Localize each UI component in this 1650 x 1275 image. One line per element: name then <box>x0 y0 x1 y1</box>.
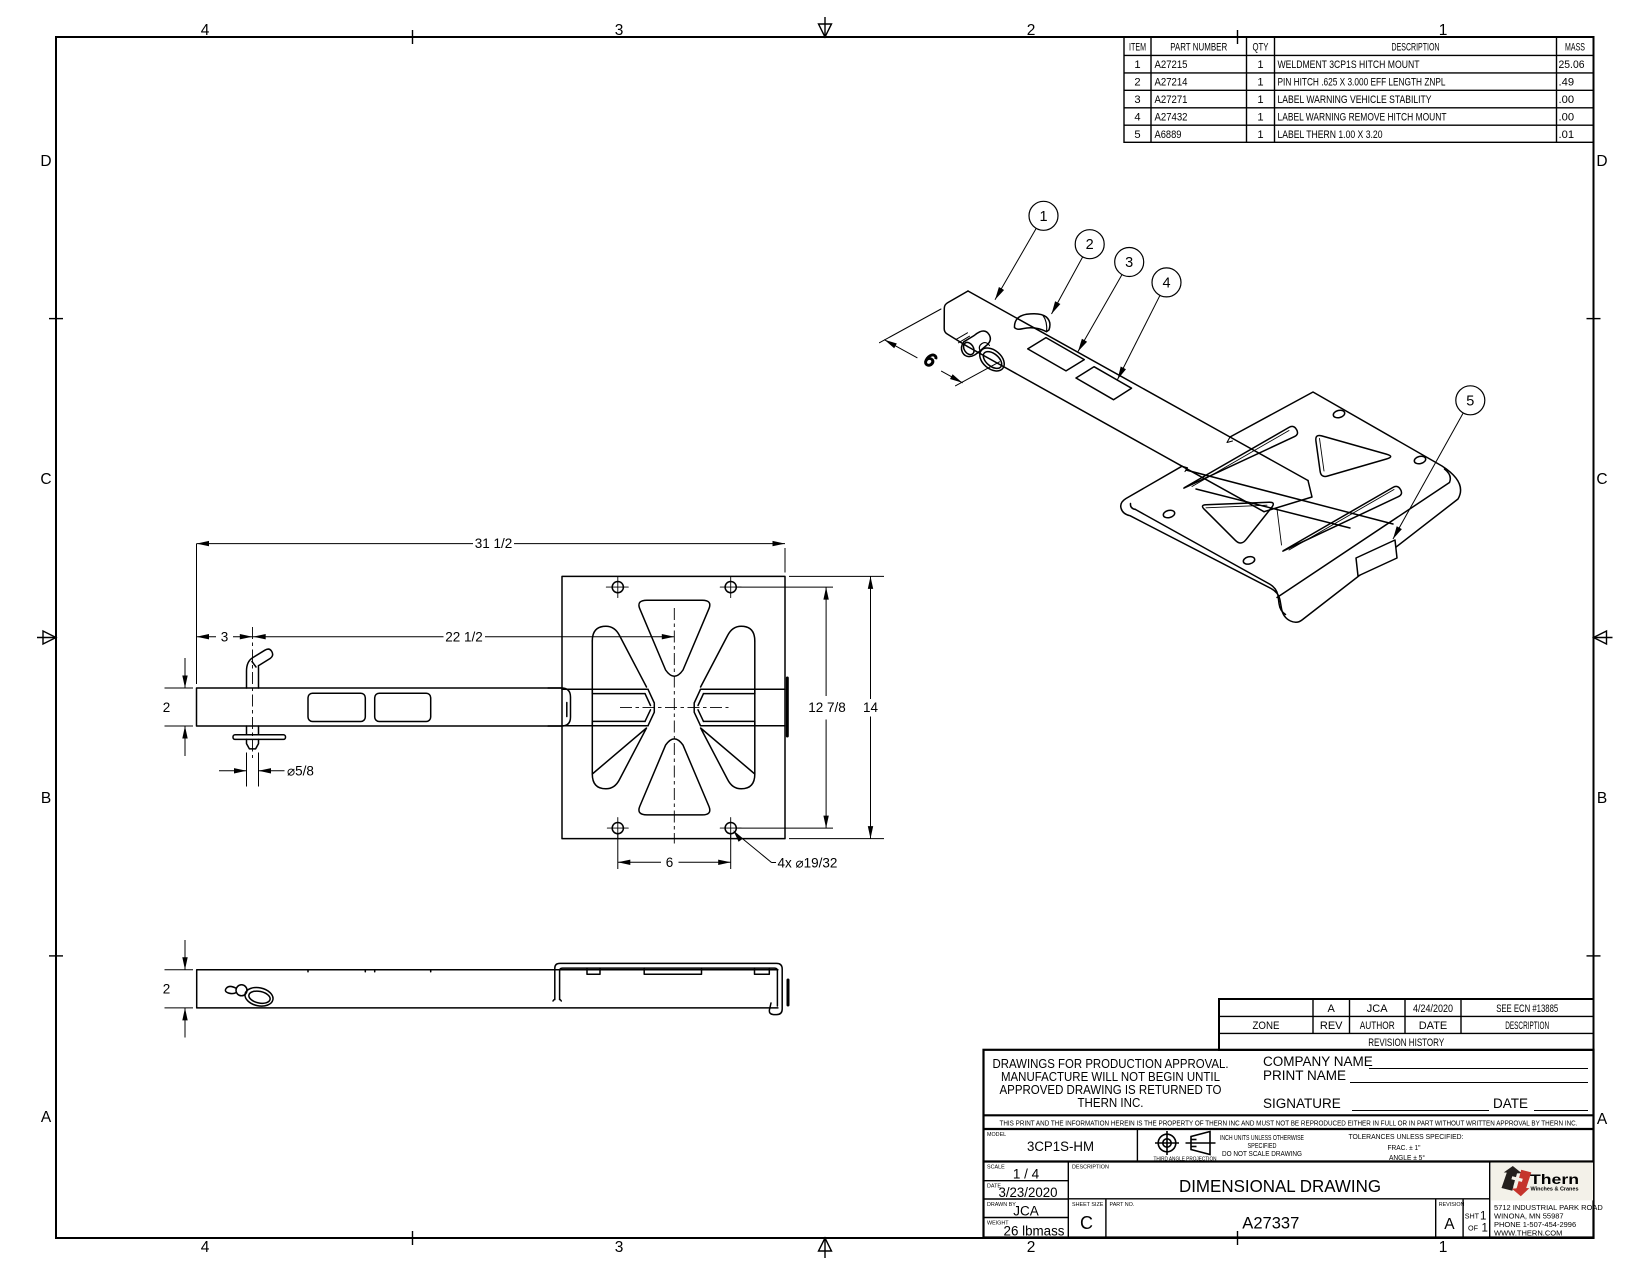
svg-text:3: 3 <box>615 22 624 39</box>
svg-text:LABEL THERN 1.00 X 3.20: LABEL THERN 1.00 X 3.20 <box>1278 129 1383 141</box>
svg-text:4: 4 <box>1162 275 1170 291</box>
svg-text:4: 4 <box>201 1239 210 1256</box>
svg-text:.01: .01 <box>1559 129 1575 141</box>
svg-text:REVISION HISTORY: REVISION HISTORY <box>1368 1037 1444 1049</box>
svg-text:3CP1S-HM: 3CP1S-HM <box>1027 1139 1094 1154</box>
svg-text:REV: REV <box>1320 1020 1343 1032</box>
svg-text:WELDMENT 3CP1S HITCH MOUNT: WELDMENT 3CP1S HITCH MOUNT <box>1278 59 1420 71</box>
svg-text:.00: .00 <box>1559 94 1575 106</box>
svg-text:.00: .00 <box>1559 112 1575 124</box>
svg-text:2: 2 <box>1027 1239 1036 1256</box>
svg-text:C: C <box>1080 1213 1093 1233</box>
svg-text:Thern: Thern <box>1530 1172 1579 1187</box>
svg-text:SHEET SIZE: SHEET SIZE <box>1072 1202 1104 1208</box>
svg-text:2: 2 <box>1134 77 1140 89</box>
svg-text:PART NO.: PART NO. <box>1110 1202 1135 1208</box>
svg-text:DESCRIPTION: DESCRIPTION <box>1072 1165 1109 1171</box>
svg-text:QTY: QTY <box>1253 42 1269 54</box>
svg-text:DESCRIPTION: DESCRIPTION <box>1505 1020 1549 1032</box>
svg-text:THIS PRINT AND THE INFORMATION: THIS PRINT AND THE INFORMATION HEREIN IS… <box>1000 1119 1578 1128</box>
svg-text:5: 5 <box>1466 393 1474 409</box>
svg-text:A27271: A27271 <box>1155 94 1188 106</box>
svg-text:3: 3 <box>1125 255 1133 271</box>
svg-text:3: 3 <box>221 629 229 644</box>
svg-text:DRAWINGS FOR PRODUCTION APPROV: DRAWINGS FOR PRODUCTION APPROVAL. <box>993 1057 1229 1071</box>
svg-text:1: 1 <box>1134 59 1140 71</box>
svg-text:3: 3 <box>1134 94 1140 106</box>
svg-text:2: 2 <box>1027 22 1036 39</box>
svg-text:THIRD ANGLE PROJECTION: THIRD ANGLE PROJECTION <box>1154 1157 1217 1163</box>
svg-text:COMPANY NAME: COMPANY NAME <box>1263 1054 1373 1069</box>
svg-text:D: D <box>1596 153 1607 170</box>
svg-text:SCALE: SCALE <box>987 1165 1005 1171</box>
svg-text:Winches & Cranes: Winches & Cranes <box>1531 1187 1579 1193</box>
svg-text:DIMENSIONAL DRAWING: DIMENSIONAL DRAWING <box>1179 1176 1381 1196</box>
svg-text:1: 1 <box>1039 209 1047 225</box>
svg-text:26 lbmass: 26 lbmass <box>1004 1224 1065 1239</box>
svg-text:A27215: A27215 <box>1155 59 1188 71</box>
svg-text:A27337: A27337 <box>1242 1214 1299 1233</box>
svg-text:C: C <box>40 471 51 488</box>
svg-text:A27214: A27214 <box>1155 77 1188 89</box>
svg-text:1: 1 <box>1257 77 1263 89</box>
svg-text:D: D <box>40 153 51 170</box>
svg-text:LABEL WARNING REMOVE HITCH MOU: LABEL WARNING REMOVE HITCH MOUNT <box>1278 112 1447 124</box>
svg-text:MODEL: MODEL <box>987 1132 1006 1138</box>
svg-text:PIN HITCH .625 X 3.000 EFF LEN: PIN HITCH .625 X 3.000 EFF LENGTH ZNPL <box>1278 77 1446 89</box>
svg-text:B: B <box>1597 790 1607 807</box>
svg-text:A: A <box>1444 1216 1455 1233</box>
svg-text:2: 2 <box>1086 237 1094 253</box>
svg-text:SEE ECN #13885: SEE ECN #13885 <box>1496 1003 1558 1015</box>
svg-text:1: 1 <box>1439 1239 1448 1256</box>
svg-text:4: 4 <box>201 22 210 39</box>
svg-text:14: 14 <box>863 700 879 715</box>
svg-text:B: B <box>41 790 51 807</box>
svg-text:2: 2 <box>163 700 171 715</box>
svg-text:DRAWN BY: DRAWN BY <box>987 1202 1016 1208</box>
svg-text:THERN INC.: THERN INC. <box>1078 1096 1144 1110</box>
svg-text:MASS: MASS <box>1565 42 1585 54</box>
svg-text:OF: OF <box>1468 1224 1479 1233</box>
svg-text:5: 5 <box>1134 129 1140 141</box>
svg-text:1: 1 <box>1257 59 1263 71</box>
svg-text:12 7/8: 12 7/8 <box>808 700 846 715</box>
svg-text:1: 1 <box>1482 1223 1488 1235</box>
svg-text:⌀5/8: ⌀5/8 <box>287 764 314 779</box>
svg-text:ZONE: ZONE <box>1253 1020 1280 1032</box>
svg-text:3: 3 <box>615 1239 624 1256</box>
svg-text:3/23/2020: 3/23/2020 <box>999 1185 1058 1200</box>
svg-text:22 1/2: 22 1/2 <box>445 629 483 644</box>
svg-text:1: 1 <box>1257 129 1263 141</box>
svg-text:SIGNATURE: SIGNATURE <box>1263 1096 1341 1111</box>
svg-text:A6889: A6889 <box>1155 129 1182 141</box>
svg-text:1: 1 <box>1480 1211 1486 1223</box>
svg-text:AUTHOR: AUTHOR <box>1360 1020 1395 1032</box>
svg-text:DATE: DATE <box>1493 1096 1528 1111</box>
svg-text:PART NUMBER: PART NUMBER <box>1170 42 1227 54</box>
svg-text:LABEL WARNING VEHICLE STABILIT: LABEL WARNING VEHICLE STABILITY <box>1278 94 1432 106</box>
svg-text:C: C <box>1596 471 1607 488</box>
svg-text:6: 6 <box>666 855 674 870</box>
svg-text:ITEM: ITEM <box>1129 42 1146 54</box>
svg-text:A: A <box>1328 1003 1336 1015</box>
svg-text:31 1/2: 31 1/2 <box>475 536 513 551</box>
svg-text:2: 2 <box>163 981 171 996</box>
svg-text:A: A <box>41 1109 52 1126</box>
svg-text:1 / 4: 1 / 4 <box>1013 1167 1040 1182</box>
svg-text:REVISION: REVISION <box>1439 1202 1465 1208</box>
svg-text:25.06: 25.06 <box>1559 59 1585 71</box>
svg-text:JCA: JCA <box>1013 1204 1039 1219</box>
svg-text:MANUFACTURE WILL NOT BEGIN UNT: MANUFACTURE WILL NOT BEGIN UNTIL <box>1001 1070 1220 1084</box>
svg-text:TOLERANCES UNLESS SPECIFIED:: TOLERANCES UNLESS SPECIFIED: <box>1349 1132 1464 1141</box>
svg-text:SHT: SHT <box>1465 1212 1480 1221</box>
svg-text:1: 1 <box>1257 94 1263 106</box>
svg-text:A27432: A27432 <box>1155 112 1188 124</box>
svg-text:ANGLE ± 5°: ANGLE ± 5° <box>1389 1153 1425 1162</box>
svg-text:1: 1 <box>1257 112 1263 124</box>
svg-text:JCA: JCA <box>1367 1003 1388 1015</box>
svg-text:DO NOT SCALE DRAWING: DO NOT SCALE DRAWING <box>1222 1149 1302 1158</box>
svg-text:A: A <box>1597 1111 1608 1128</box>
svg-text:FRAC. ± 1": FRAC. ± 1" <box>1388 1143 1421 1152</box>
svg-text:DESCRIPTION: DESCRIPTION <box>1392 42 1440 54</box>
svg-text:WWW.THERN.COM: WWW.THERN.COM <box>1494 1229 1562 1238</box>
svg-text:PRINT NAME: PRINT NAME <box>1263 1068 1346 1083</box>
svg-text:4x ⌀19/32: 4x ⌀19/32 <box>778 855 838 870</box>
svg-text:4: 4 <box>1134 112 1140 124</box>
svg-text:.49: .49 <box>1559 77 1575 89</box>
svg-text:APPROVED DRAWING IS RETURNED T: APPROVED DRAWING IS RETURNED TO <box>1000 1083 1222 1097</box>
svg-text:4/24/2020: 4/24/2020 <box>1413 1003 1453 1015</box>
svg-text:DATE: DATE <box>1419 1020 1448 1032</box>
